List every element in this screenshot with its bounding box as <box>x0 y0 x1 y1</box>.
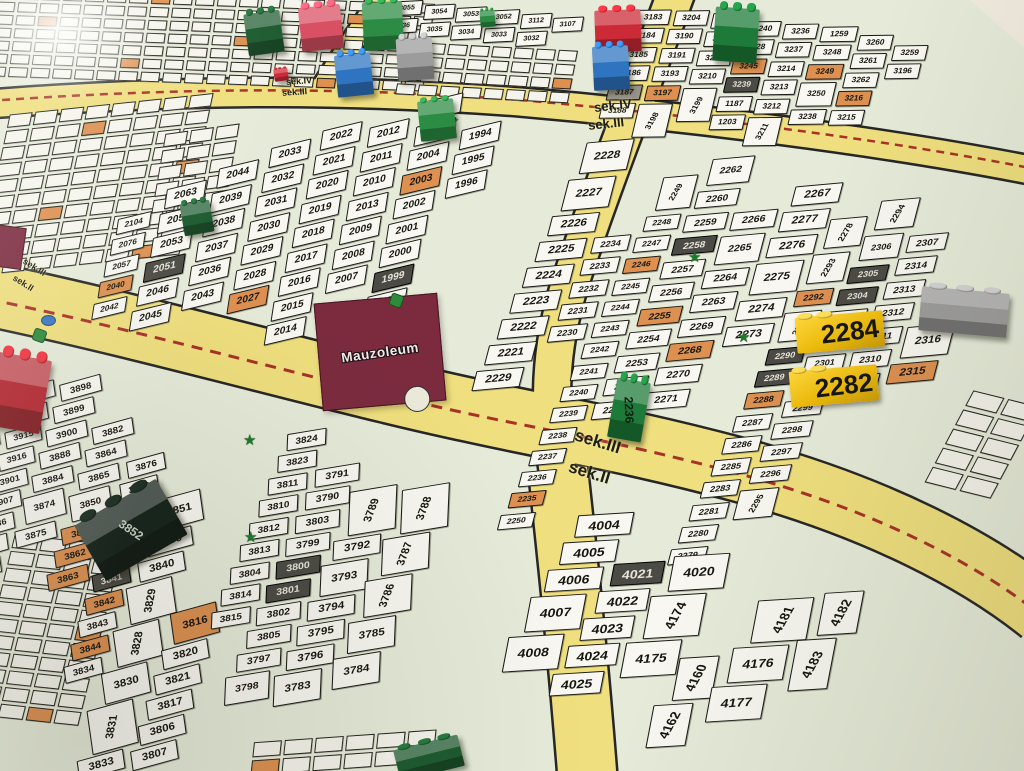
tiny-plot <box>228 75 248 86</box>
plot-number: 3785 <box>358 627 385 642</box>
plot-number: 1259 <box>829 30 849 38</box>
tiny-plot <box>84 104 110 120</box>
plot-number: 2307 <box>915 237 940 248</box>
plot-number: 2241 <box>579 367 600 376</box>
plot-2233: 2233 <box>579 257 620 277</box>
plot-2076: 2076 <box>109 232 145 257</box>
plot-4025: 4025 <box>549 670 606 696</box>
plot-number: 2021 <box>322 152 346 168</box>
plot-2250: 2250 <box>497 512 536 531</box>
plot-number: 2256 <box>658 287 683 298</box>
plot-3864: 3864 <box>84 440 127 469</box>
plot-3792: 3792 <box>332 533 381 561</box>
plot-2296: 2296 <box>748 464 792 484</box>
tiny-plot <box>10 54 30 65</box>
plot-number: 4182 <box>827 598 854 627</box>
plot-number: 2288 <box>752 395 775 405</box>
brick-label: 2236 <box>598 392 659 428</box>
tiny-plot <box>79 249 105 265</box>
plot-3262: 3262 <box>842 72 880 88</box>
tiny-plot <box>513 47 534 59</box>
plot-number: 3237 <box>783 46 803 54</box>
plot-3899: 3899 <box>52 397 95 426</box>
tiny-plot <box>0 53 8 64</box>
tiny-plot <box>76 56 96 67</box>
plot-3248: 3248 <box>812 45 852 61</box>
brick-blue <box>592 45 630 91</box>
plot-number: 2283 <box>709 484 732 494</box>
plot-number: 2042 <box>100 302 120 315</box>
mausoleum-building: Mauzoleum <box>314 293 447 411</box>
plot-number: 2266 <box>741 214 767 226</box>
plot-number: 3034 <box>458 28 475 36</box>
tiny-plot <box>171 8 191 19</box>
plot-number: 3806 <box>149 721 176 738</box>
plot-3238: 3238 <box>787 109 827 125</box>
plot-number: 2032 <box>270 170 294 186</box>
plot-number: 2249 <box>668 183 685 201</box>
tiny-plot <box>186 60 206 71</box>
brick-red-tiny <box>273 67 289 82</box>
tiny-plot <box>70 170 96 186</box>
tiny-plot <box>12 41 32 52</box>
plot-number: 3814 <box>229 589 252 602</box>
plot-number: 3199 <box>688 95 705 114</box>
plot-number: 3787 <box>396 541 416 566</box>
tiny-plot <box>103 18 123 29</box>
tiny-plot <box>26 142 52 158</box>
plot-number: 3831 <box>105 714 121 738</box>
plot-number: 2033 <box>277 145 301 161</box>
plot-number: 3792 <box>343 540 370 555</box>
plot-2238: 2238 <box>538 426 577 445</box>
plot-number: 2287 <box>742 418 765 428</box>
plot-2264: 2264 <box>701 267 750 290</box>
yellow-marker-2284: 2284 <box>795 310 886 354</box>
tiny-plot <box>195 0 215 6</box>
plot-3843: 3843 <box>77 611 117 639</box>
plot-number: 3899 <box>63 404 86 419</box>
plot-number: 3214 <box>776 65 796 73</box>
plot-number: 2313 <box>892 284 917 295</box>
plot-4182: 4182 <box>816 590 864 635</box>
marker-stud <box>791 366 807 375</box>
plot-number: 3210 <box>697 73 717 81</box>
plot-number: 3198 <box>643 111 660 130</box>
plot-number: 2315 <box>898 365 927 378</box>
plot-number: 3260 <box>865 39 885 47</box>
tiny-plot <box>123 32 143 43</box>
tiny-plot <box>15 192 41 208</box>
plot-number: 3864 <box>94 447 117 462</box>
plot-number: 3239 <box>732 81 752 89</box>
plot-2256: 2256 <box>647 282 694 304</box>
tiny-plot <box>56 236 82 252</box>
tiny-plot <box>162 72 182 83</box>
brick-stud <box>283 66 286 68</box>
tiny-plot <box>491 46 512 58</box>
tiny-plot <box>122 45 142 56</box>
plot-number: 3215 <box>837 114 857 122</box>
plot-number: 3190 <box>674 33 694 41</box>
plot-3798: 3798 <box>224 670 270 705</box>
tiny-plot <box>34 42 54 53</box>
plot-number: 4024 <box>576 649 610 663</box>
plot-number: 2010 <box>362 174 386 190</box>
plot-2042: 2042 <box>91 295 127 320</box>
tiny-plot <box>215 9 235 20</box>
plot-3211: 3211 <box>742 117 783 146</box>
plot-3214: 3214 <box>767 61 805 77</box>
tiny-plot <box>0 161 22 177</box>
brick-gray <box>396 37 435 81</box>
plot-number: 2013 <box>355 198 379 214</box>
brick-stud <box>190 198 197 204</box>
tiny-plot <box>510 61 531 73</box>
tiny-plot <box>96 70 116 81</box>
plot-number: 4022 <box>606 594 640 608</box>
brick-gray-wide <box>918 286 1010 338</box>
plot-number: 3795 <box>307 625 334 640</box>
plot-number: 4021 <box>621 567 655 581</box>
plot-number: 4177 <box>719 696 753 710</box>
plot-2253: 2253 <box>613 352 660 374</box>
tiny-plot <box>0 40 10 51</box>
tiny-plot <box>193 8 213 19</box>
plot-3204: 3204 <box>672 10 710 26</box>
plot-number: 3035 <box>426 26 443 34</box>
plot-2274: 2274 <box>734 297 788 322</box>
plot-number: 3900 <box>56 426 79 441</box>
plot-number: 2226 <box>559 218 588 231</box>
tiny-plot <box>19 175 45 191</box>
plot-3823: 3823 <box>277 450 317 474</box>
tiny-plot <box>549 91 570 103</box>
plot-2245: 2245 <box>611 277 650 296</box>
plot-3112: 3112 <box>520 13 553 29</box>
plot-number: 3789 <box>362 498 382 523</box>
tiny-plot <box>217 0 237 7</box>
tiny-plot <box>22 159 48 175</box>
plot-3842: 3842 <box>84 589 124 617</box>
plot-4177: 4177 <box>704 684 767 723</box>
plot-number: 2225 <box>547 244 576 257</box>
tiny-plot <box>188 93 214 109</box>
brick-stud <box>480 8 483 11</box>
plot-number: 4181 <box>768 605 795 634</box>
plot-number: 2233 <box>589 261 612 271</box>
plot-2230: 2230 <box>547 323 588 343</box>
plot-2040: 2040 <box>97 274 133 299</box>
plot-number: 2240 <box>568 388 589 397</box>
plot-number: 3193 <box>659 70 679 78</box>
plot-number: 2008 <box>341 247 365 263</box>
plot-number: 2229 <box>483 373 512 386</box>
plot-3784: 3784 <box>332 651 382 690</box>
tiny-plot <box>252 740 282 757</box>
plot-number: 2277 <box>790 214 819 227</box>
plot-number: 2234 <box>600 239 623 249</box>
tiny-plot <box>343 752 373 769</box>
plot-number: 2228 <box>592 150 621 163</box>
plot-number: 2004 <box>416 148 440 164</box>
plot-4022: 4022 <box>594 588 651 614</box>
tiny-plot <box>55 123 81 139</box>
plot-number: 2237 <box>537 452 558 461</box>
plot-number: 3799 <box>296 538 320 551</box>
plot-number: 2248 <box>651 218 672 227</box>
plot-number: 2289 <box>763 373 786 383</box>
tiny-plot <box>118 71 138 82</box>
plot-number: 2223 <box>521 295 550 308</box>
tiny-plot <box>41 0 61 1</box>
plot-number: 3803 <box>306 515 330 528</box>
plot-4175: 4175 <box>620 640 683 679</box>
plot-2244: 2244 <box>601 299 640 318</box>
plot-number: 2037 <box>204 239 228 255</box>
plot-3806: 3806 <box>138 713 187 746</box>
tiny-plot <box>189 34 209 45</box>
plot-2225: 2225 <box>534 238 588 263</box>
plot-2307: 2307 <box>905 232 949 253</box>
plot-number: 3262 <box>851 76 871 84</box>
plot-2231: 2231 <box>558 301 599 321</box>
plot-2305: 2305 <box>846 264 890 284</box>
tiny-plot <box>7 112 33 128</box>
plot-number: 3213 <box>769 84 789 92</box>
tiny-plot <box>184 73 204 84</box>
plot-number: 2031 <box>263 194 287 210</box>
tiny-plot <box>187 47 207 58</box>
plot-number: 3901 <box>0 473 21 487</box>
plot-3828: 3828 <box>112 618 164 668</box>
plot-number: 3249 <box>815 68 835 76</box>
plot-3191: 3191 <box>658 47 696 63</box>
tiny-plot <box>0 14 14 25</box>
tiny-plot <box>466 59 487 71</box>
plot-2288: 2288 <box>743 390 784 410</box>
plot-number: 3107 <box>559 21 576 29</box>
plot-1203: 1203 <box>709 114 747 130</box>
plot-number: 2253 <box>624 357 649 368</box>
plot-3874: 3874 <box>22 488 67 526</box>
tiny-plot <box>82 233 108 249</box>
tiny-plot <box>151 0 171 5</box>
tiny-plot <box>442 72 463 84</box>
plot-2239: 2239 <box>549 405 588 424</box>
tiny-plot <box>86 216 112 232</box>
plot-3190: 3190 <box>665 29 703 45</box>
plot-2292: 2292 <box>793 288 834 308</box>
plot-3875: 3875 <box>14 520 57 549</box>
plot-3900: 3900 <box>45 419 88 448</box>
star-icon: ★ <box>737 330 750 345</box>
plot-number: 2227 <box>574 186 603 199</box>
plot-number: 2051 <box>152 260 176 276</box>
plot-number: 3032 <box>523 35 540 43</box>
plot-number: 2235 <box>516 495 537 504</box>
tiny-plot <box>0 178 19 194</box>
plot-3215: 3215 <box>828 109 866 125</box>
plot-number: 4162 <box>656 710 683 739</box>
tiny-plot <box>32 55 52 66</box>
plot-number: 3793 <box>331 570 358 585</box>
tiny-plot <box>61 4 81 15</box>
tiny-plot <box>74 153 100 169</box>
plot-2255: 2255 <box>636 305 683 327</box>
tiny-plot <box>169 21 189 32</box>
tiny-plot <box>252 62 272 73</box>
plot-number: 2238 <box>547 431 568 440</box>
plot-2285: 2285 <box>711 457 752 477</box>
tiny-plot <box>53 252 79 268</box>
plot-4008: 4008 <box>502 634 565 673</box>
plot-number: 2045 <box>138 308 162 324</box>
tiny-plot <box>206 74 226 85</box>
tiny-plot <box>63 203 89 219</box>
plot-3807: 3807 <box>130 739 179 771</box>
plot-2033: 2033 <box>268 138 311 167</box>
tiny-plot <box>93 183 119 199</box>
plot-number: 3216 <box>844 95 864 103</box>
plot-number: 2046 <box>145 284 169 300</box>
plot-number: 2314 <box>904 261 929 272</box>
brick-green-tiny <box>479 9 495 27</box>
tiny-plot <box>105 5 125 16</box>
tiny-plot <box>31 238 57 254</box>
plot-number: 2001 <box>395 221 419 237</box>
plot-number: 2316 <box>913 334 942 347</box>
tiny-plot <box>345 734 375 751</box>
tiny-plot <box>314 736 344 753</box>
plot-2246: 2246 <box>622 256 661 275</box>
plot-number: 2007 <box>334 271 358 287</box>
plot-number: 3238 <box>797 113 817 121</box>
tiny-plot <box>35 29 55 40</box>
plot-number: 3863 <box>57 570 80 585</box>
plot-3916: 3916 <box>0 445 36 472</box>
brick-shadow <box>593 76 630 91</box>
plot-number: 1995 <box>461 152 485 168</box>
tiny-plot <box>147 20 167 31</box>
plot-number: 2243 <box>599 325 620 334</box>
plot-3213: 3213 <box>760 80 798 96</box>
plot-number: 4004 <box>588 518 622 532</box>
plot-number: 3197 <box>652 89 672 97</box>
tiny-plot <box>83 5 103 16</box>
plot-number: 2244 <box>610 303 631 312</box>
tiny-plot <box>297 51 317 62</box>
plot-3239: 3239 <box>723 77 761 93</box>
tiny-plot <box>447 44 468 56</box>
plot-3800: 3800 <box>275 555 320 581</box>
plot-number: 3842 <box>93 595 116 610</box>
plot-number: 3816 <box>182 614 209 631</box>
plot-2236: 2236 <box>518 469 557 488</box>
tiny-plot <box>469 45 490 57</box>
tiny-plot <box>125 19 145 30</box>
tiny-plot <box>67 186 93 202</box>
tiny-plot <box>89 200 115 216</box>
plot-number: 2018 <box>301 225 325 241</box>
tiny-plot <box>281 756 311 771</box>
plot-3796: 3796 <box>286 643 335 671</box>
tiny-plot <box>103 134 129 150</box>
tiny-plot <box>530 76 551 88</box>
tiny-plot <box>100 151 126 167</box>
plot-number: 2254 <box>636 334 661 345</box>
plot-number: 2281 <box>698 507 721 517</box>
plot-number: 4025 <box>560 676 594 690</box>
plot-4024: 4024 <box>564 643 621 669</box>
plot-number: 4006 <box>557 573 591 587</box>
tiny-plot <box>532 62 553 74</box>
plot-2227: 2227 <box>561 175 618 211</box>
plot-number: 3884 <box>42 472 65 487</box>
plot-2057: 2057 <box>103 253 139 278</box>
plot-number: 3112 <box>528 17 545 25</box>
tiny-plot <box>167 34 187 45</box>
tiny-plot <box>107 118 133 134</box>
yellow-marker-2282: 2282 <box>789 364 880 408</box>
plot-2275: 2275 <box>748 260 805 296</box>
plot-2297: 2297 <box>759 442 803 462</box>
tiny-plot <box>296 64 316 75</box>
plot-number: 3828 <box>130 631 146 655</box>
plot-number: 2260 <box>704 193 729 204</box>
plot-number: 3053 <box>463 11 480 19</box>
tiny-plot <box>250 75 270 86</box>
brick-crimson <box>298 4 344 52</box>
tiny-plot <box>283 738 313 755</box>
brick-stud <box>485 8 488 11</box>
plot-number: 2292 <box>803 293 826 303</box>
plot-number: 2285 <box>720 462 743 472</box>
plot-number: 2232 <box>578 284 601 294</box>
tiny-plot <box>945 429 984 452</box>
plot-number: 3898 <box>70 381 93 396</box>
plot-number: 2043 <box>190 288 214 304</box>
plot-2012: 2012 <box>367 118 410 147</box>
plot-2228: 2228 <box>579 138 636 174</box>
tiny-plot <box>990 418 1024 441</box>
plot-2267: 2267 <box>790 182 844 207</box>
plot-number: 2044 <box>225 166 249 182</box>
plot-number: 2295 <box>747 494 766 514</box>
plot-number: 4176 <box>741 656 775 670</box>
plot-number: 3876 <box>135 458 158 473</box>
tiny-plot <box>56 43 76 54</box>
tiny-plot <box>211 35 231 46</box>
plot-2298: 2298 <box>770 420 814 440</box>
map-photo: Mauzoleum 210420762057204020422063205420… <box>0 0 1024 771</box>
plot-3824: 3824 <box>286 428 326 452</box>
plot-2235: 2235 <box>507 490 546 509</box>
star-icon: ★ <box>688 250 701 265</box>
plot-number: 2305 <box>857 269 880 279</box>
tiny-plot <box>45 172 71 188</box>
plot-column: 31123032 <box>514 13 552 47</box>
tiny-plot <box>33 109 59 125</box>
plot-3830: 3830 <box>100 661 151 704</box>
plot-number: 2039 <box>218 190 242 206</box>
tiny-plot <box>81 18 101 29</box>
brick-stud <box>200 197 207 203</box>
plot-number: 4183 <box>798 649 825 678</box>
plot-2286: 2286 <box>721 435 762 455</box>
plot-3882: 3882 <box>91 417 134 446</box>
plot-number: 3815 <box>220 612 243 625</box>
